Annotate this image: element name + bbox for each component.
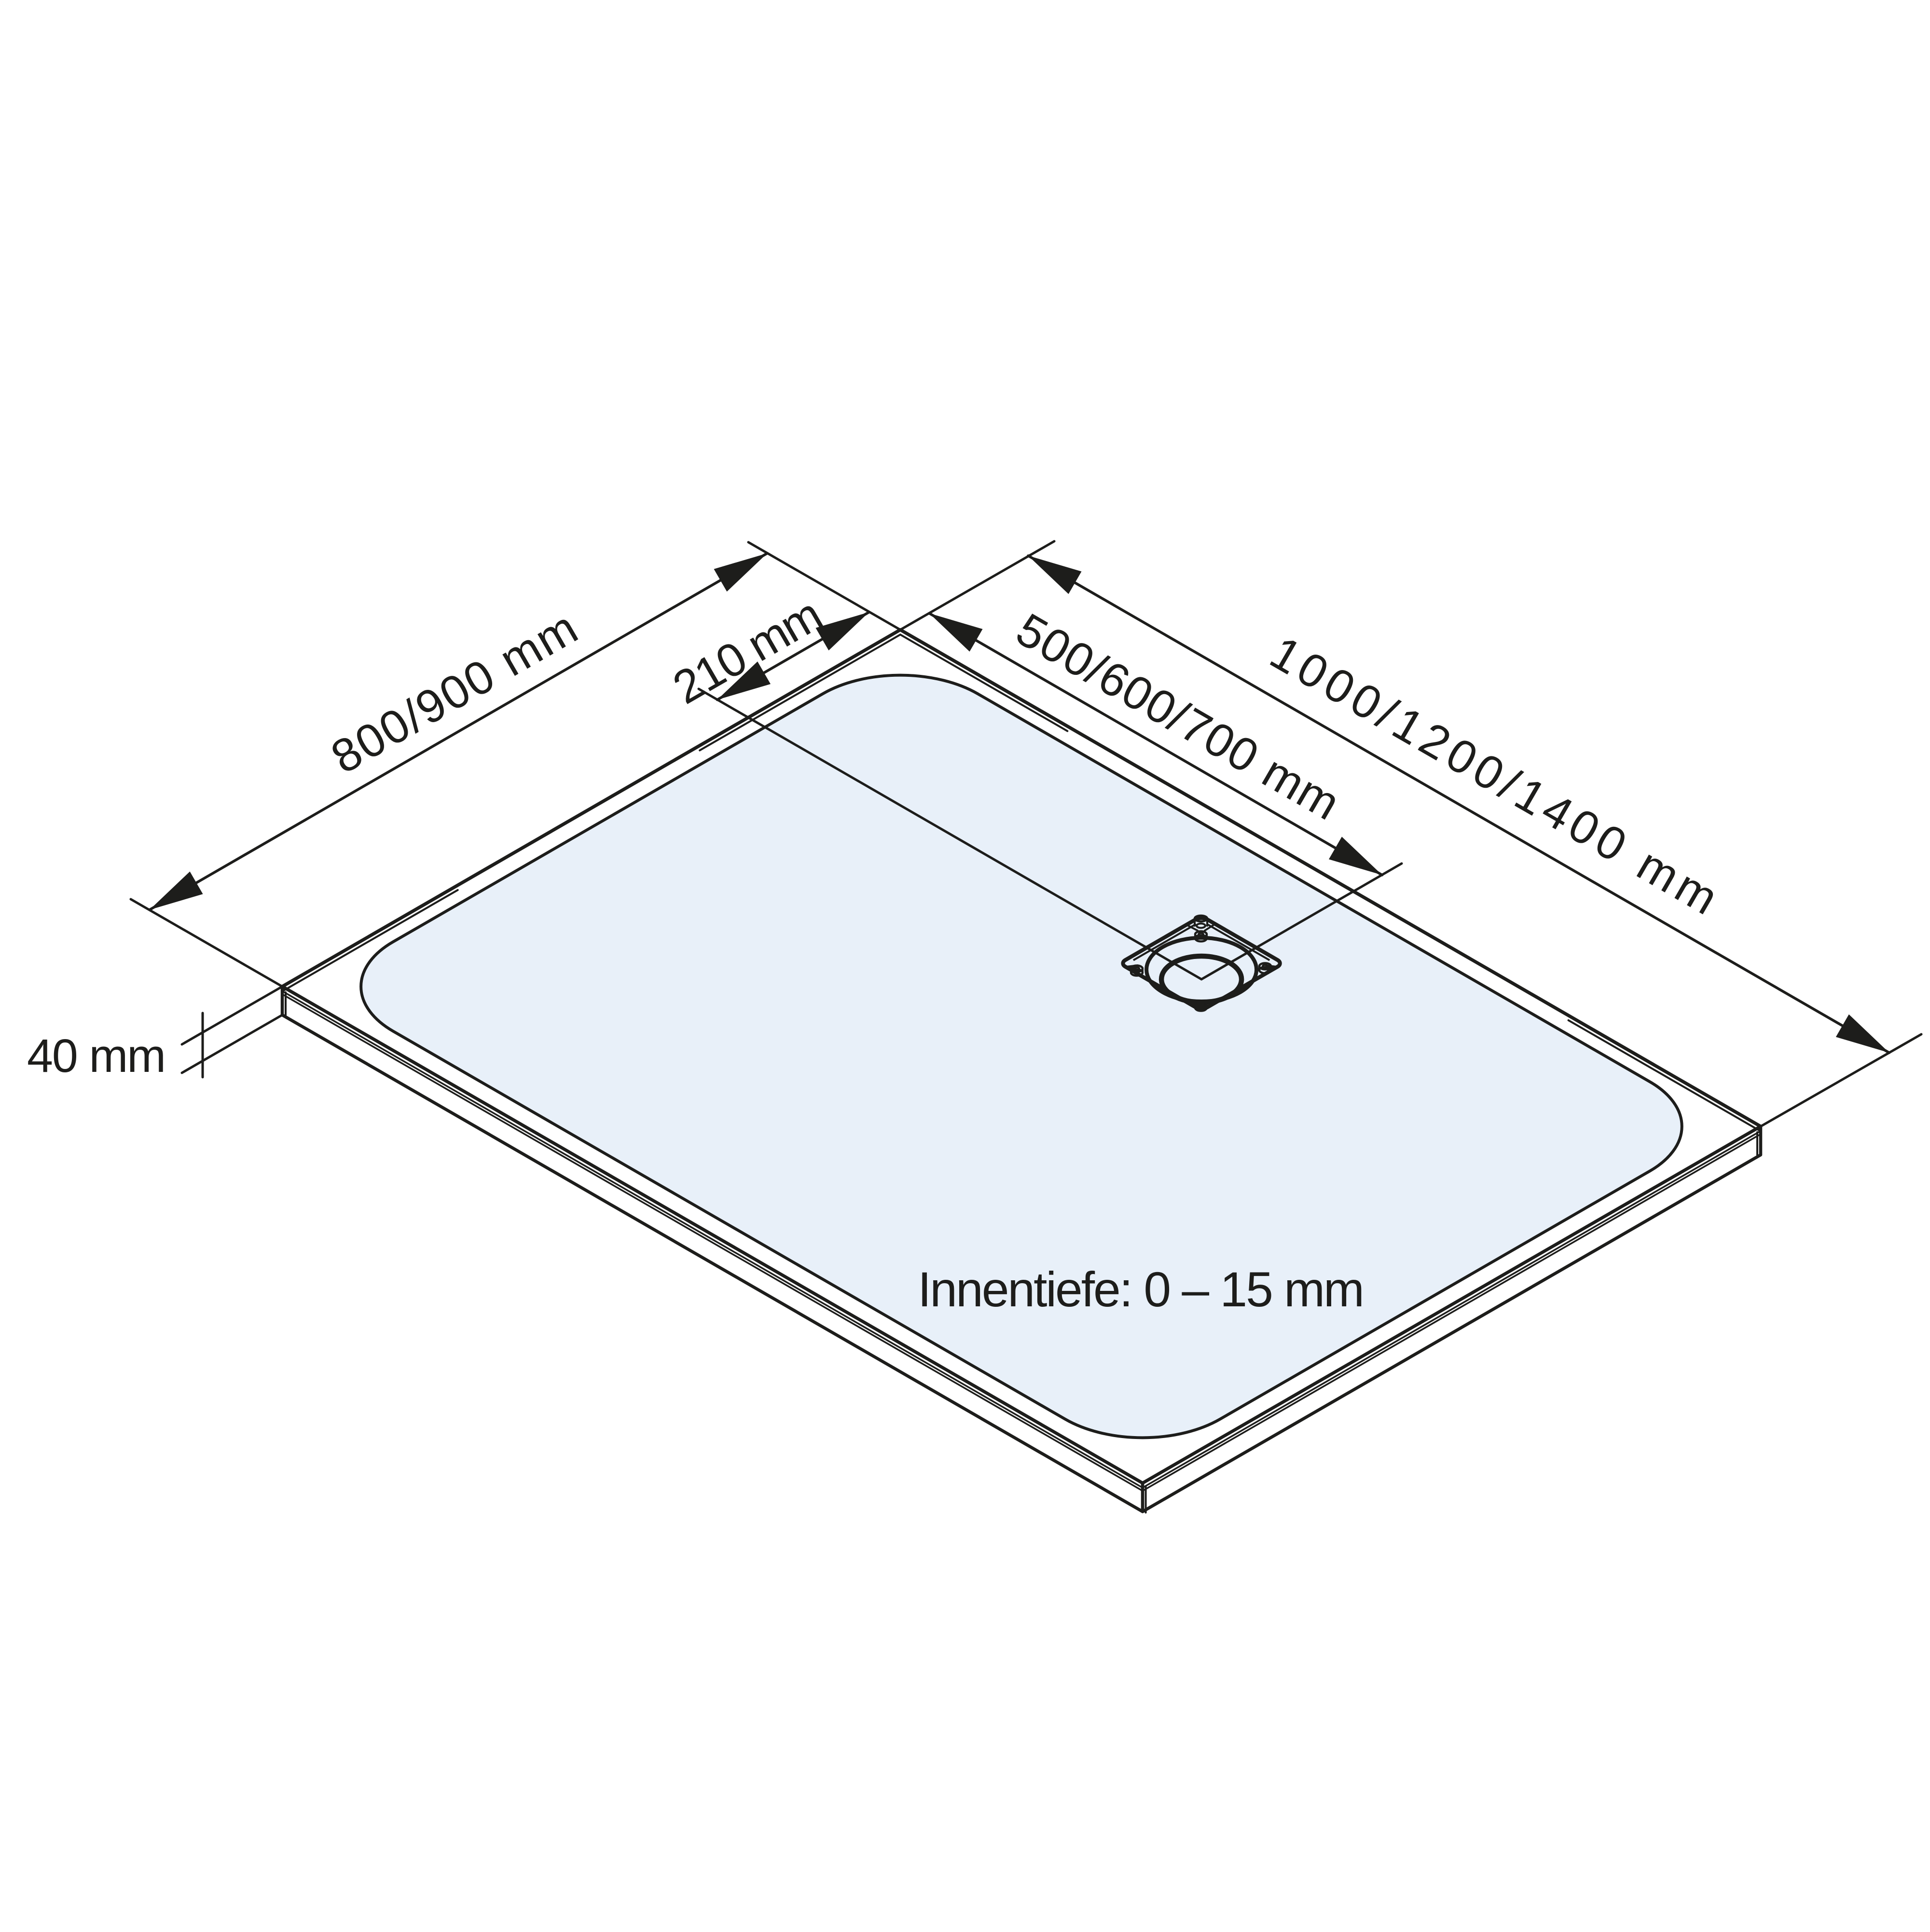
svg-text:40 mm: 40 mm [27,1029,166,1082]
svg-text:Innentiefe: 0 – 15 mm: Innentiefe: 0 – 15 mm [918,1262,1365,1317]
